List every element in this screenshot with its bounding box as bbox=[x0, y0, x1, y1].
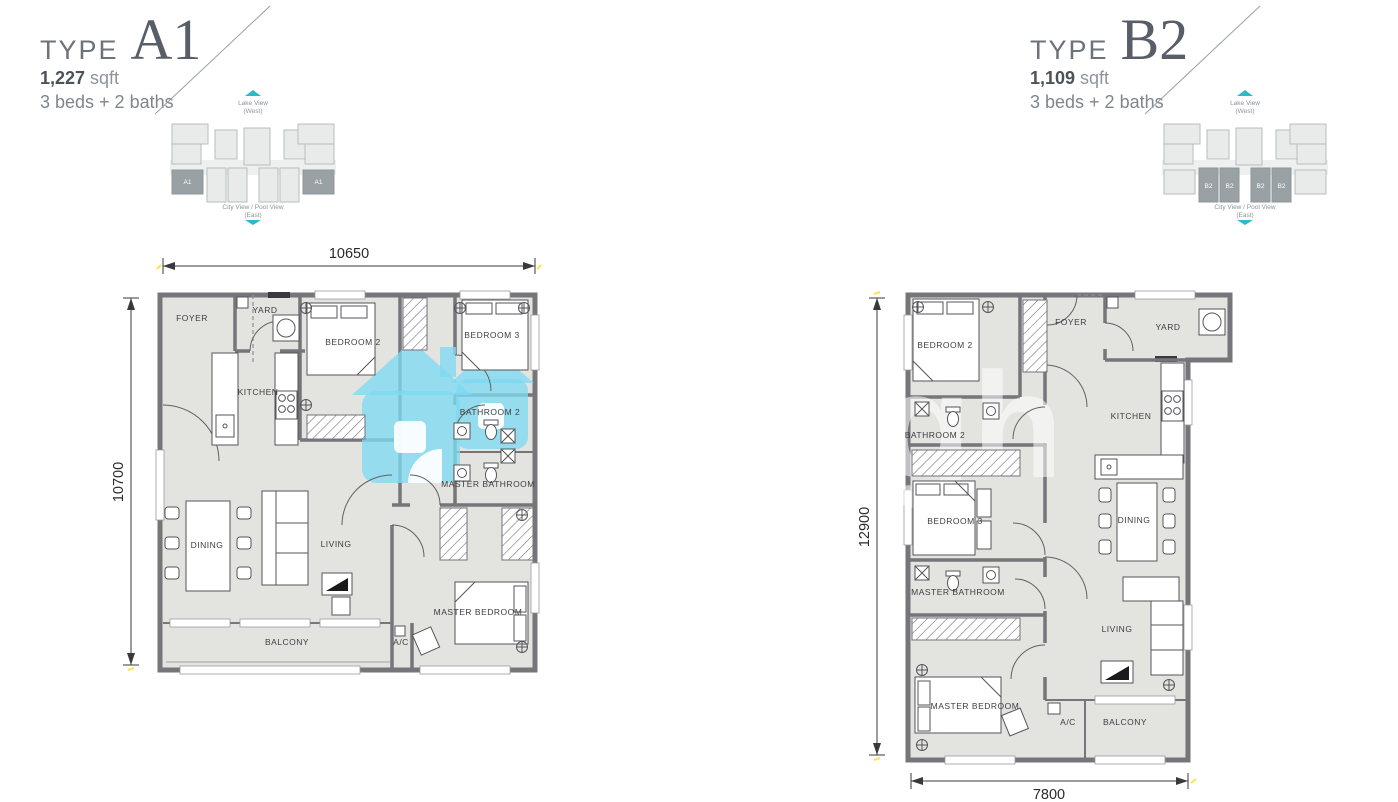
site-block bbox=[228, 168, 247, 202]
room-label-bathroom2: BATHROOM 2 bbox=[460, 407, 521, 417]
svg-text:B2: B2 bbox=[1205, 183, 1213, 190]
dimension-value: 10700 bbox=[111, 462, 127, 502]
room-label-ac: A/C bbox=[1060, 717, 1076, 727]
wardrobe bbox=[440, 508, 467, 560]
room-label-ac: A/C bbox=[393, 637, 409, 647]
room-label-master-bedroom: MASTER BEDROOM bbox=[434, 607, 523, 617]
svg-text:B2: B2 bbox=[1278, 183, 1286, 190]
top-view-label: Lake View bbox=[238, 100, 268, 107]
room-label-living: LIVING bbox=[1102, 624, 1133, 634]
site-block bbox=[1295, 170, 1326, 194]
dimension-top-a1: 10650 bbox=[157, 246, 541, 274]
svg-text:A1: A1 bbox=[184, 179, 192, 186]
room-label-foyer: FOYER bbox=[176, 313, 208, 323]
type-word: TYPE bbox=[40, 35, 119, 66]
site-diagram-a1: Lake View (West) A1 A1 City View / Pool … bbox=[158, 88, 348, 224]
wardrobe bbox=[912, 618, 1020, 640]
floorplan-b2: 12900 7800 gh bbox=[855, 245, 1255, 802]
site-block bbox=[280, 168, 299, 202]
dimension-value: 7800 bbox=[1033, 787, 1065, 802]
room-label-master-bedroom: MASTER BEDROOM bbox=[931, 701, 1020, 711]
top-view-label: Lake View bbox=[1230, 100, 1260, 107]
svg-text:A1: A1 bbox=[315, 179, 323, 186]
bottom-view-label: City View / Pool View bbox=[222, 204, 283, 211]
room-label-bedroom2: BEDROOM 2 bbox=[325, 337, 381, 347]
view-arrow-down-icon bbox=[245, 220, 261, 225]
area-unit: sqft bbox=[90, 68, 119, 88]
site-block bbox=[207, 168, 226, 202]
room-label-kitchen: KITCHEN bbox=[238, 387, 279, 397]
room-label-master-bathroom: MASTER BATHROOM bbox=[441, 479, 535, 489]
svg-text:B2: B2 bbox=[1226, 183, 1234, 190]
site-block bbox=[259, 168, 278, 202]
dimension-bottom-b2: 7800 bbox=[911, 773, 1196, 802]
area-value: 1,227 bbox=[40, 68, 85, 88]
room-label-dining: DINING bbox=[1118, 515, 1151, 525]
room-label-master-bathroom: MASTER BATHROOM bbox=[911, 587, 1005, 597]
svg-text:B2: B2 bbox=[1257, 183, 1265, 190]
view-arrow-down-icon bbox=[1237, 220, 1253, 225]
room-label-bathroom2: BATHROOM 2 bbox=[905, 430, 966, 440]
wardrobe bbox=[307, 415, 365, 439]
room-label-bedroom3: BEDROOM 3 bbox=[927, 516, 983, 526]
bottom-view-sub: (East) bbox=[244, 212, 261, 219]
room-label-yard: YARD bbox=[253, 305, 278, 315]
top-view-sub: (West) bbox=[243, 108, 262, 115]
floorplan-a1: 10650 10700 bbox=[110, 245, 555, 685]
room-label-foyer: FOYER bbox=[1055, 317, 1087, 327]
top-view-sub: (West) bbox=[1235, 108, 1254, 115]
dimension-value: 10650 bbox=[329, 246, 369, 262]
wardrobe bbox=[912, 450, 1020, 476]
wardrobe bbox=[502, 508, 533, 560]
area-unit: sqft bbox=[1080, 68, 1109, 88]
type-word: TYPE bbox=[1030, 35, 1109, 66]
room-label-dining: DINING bbox=[191, 540, 224, 550]
dimension-left-a1: 10700 bbox=[111, 298, 139, 670]
site-diagram-b2: Lake View (West) B2 B2B2 B2 City View / … bbox=[1150, 88, 1340, 224]
bottom-view-sub: (East) bbox=[1236, 212, 1253, 219]
site-block bbox=[1164, 170, 1195, 194]
room-label-kitchen: KITCHEN bbox=[1111, 411, 1152, 421]
area-value: 1,109 bbox=[1030, 68, 1075, 88]
wardrobe bbox=[403, 298, 427, 350]
room-label-balcony: BALCONY bbox=[265, 637, 309, 647]
room-label-living: LIVING bbox=[321, 539, 352, 549]
wardrobe bbox=[1023, 300, 1047, 372]
room-label-bedroom3: BEDROOM 3 bbox=[464, 330, 520, 340]
view-arrow-up-icon bbox=[1237, 90, 1253, 96]
room-label-yard: YARD bbox=[1156, 322, 1181, 332]
room-label-balcony: BALCONY bbox=[1103, 717, 1147, 727]
room-label-bedroom2: BEDROOM 2 bbox=[917, 340, 973, 350]
floorplan-sheet: TYPE A1 1,227sqft 3 beds + 2 baths Lake … bbox=[0, 0, 1398, 802]
dimension-value: 12900 bbox=[857, 507, 873, 547]
bottom-view-label: City View / Pool View bbox=[1214, 204, 1275, 211]
view-arrow-up-icon bbox=[245, 90, 261, 96]
